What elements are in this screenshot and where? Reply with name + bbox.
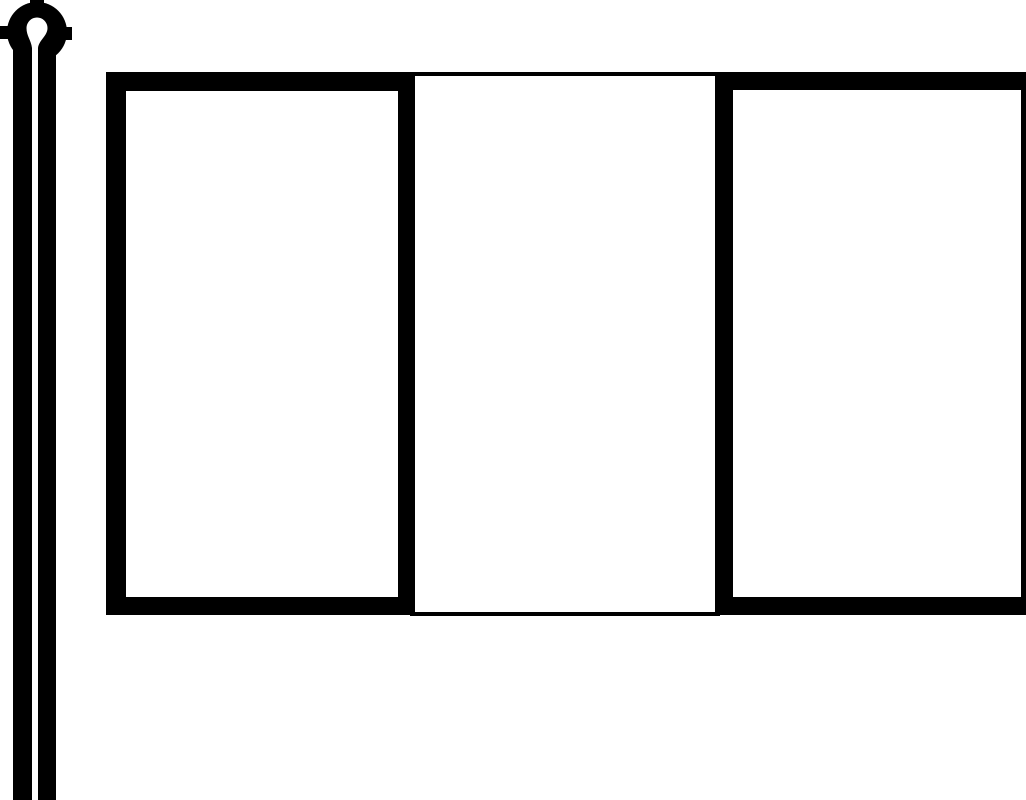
pole-right-nub bbox=[62, 27, 72, 40]
flag-bottom-border-left bbox=[106, 597, 415, 615]
pole-left-line bbox=[13, 35, 32, 800]
flag-divider-left bbox=[398, 72, 415, 615]
flag-middle-bottom-line bbox=[410, 612, 720, 616]
pole-right-line bbox=[38, 35, 56, 800]
flag-divider-right bbox=[715, 72, 733, 615]
flag bbox=[106, 72, 1026, 616]
flag-bottom-border-right bbox=[715, 597, 1026, 615]
pole-inner-gap bbox=[32, 50, 38, 800]
pole-left-nub bbox=[0, 26, 9, 39]
flag-top-border-right bbox=[715, 72, 1023, 90]
flag-left-border bbox=[106, 72, 126, 615]
flag-top-border-left bbox=[106, 72, 415, 91]
blank-flag-clipart: Black-and-white outline clip art of a bl… bbox=[0, 0, 1026, 800]
flag-panel-right bbox=[733, 90, 1021, 597]
flag-right-edge-line bbox=[1021, 72, 1026, 615]
flag-panel-left bbox=[126, 91, 398, 597]
flag-middle-top-line bbox=[410, 72, 720, 76]
flag-panel-middle bbox=[415, 76, 715, 612]
pole-top-stub bbox=[30, 0, 44, 10]
clipart-canvas: Black-and-white outline clip art of a bl… bbox=[0, 0, 1026, 800]
